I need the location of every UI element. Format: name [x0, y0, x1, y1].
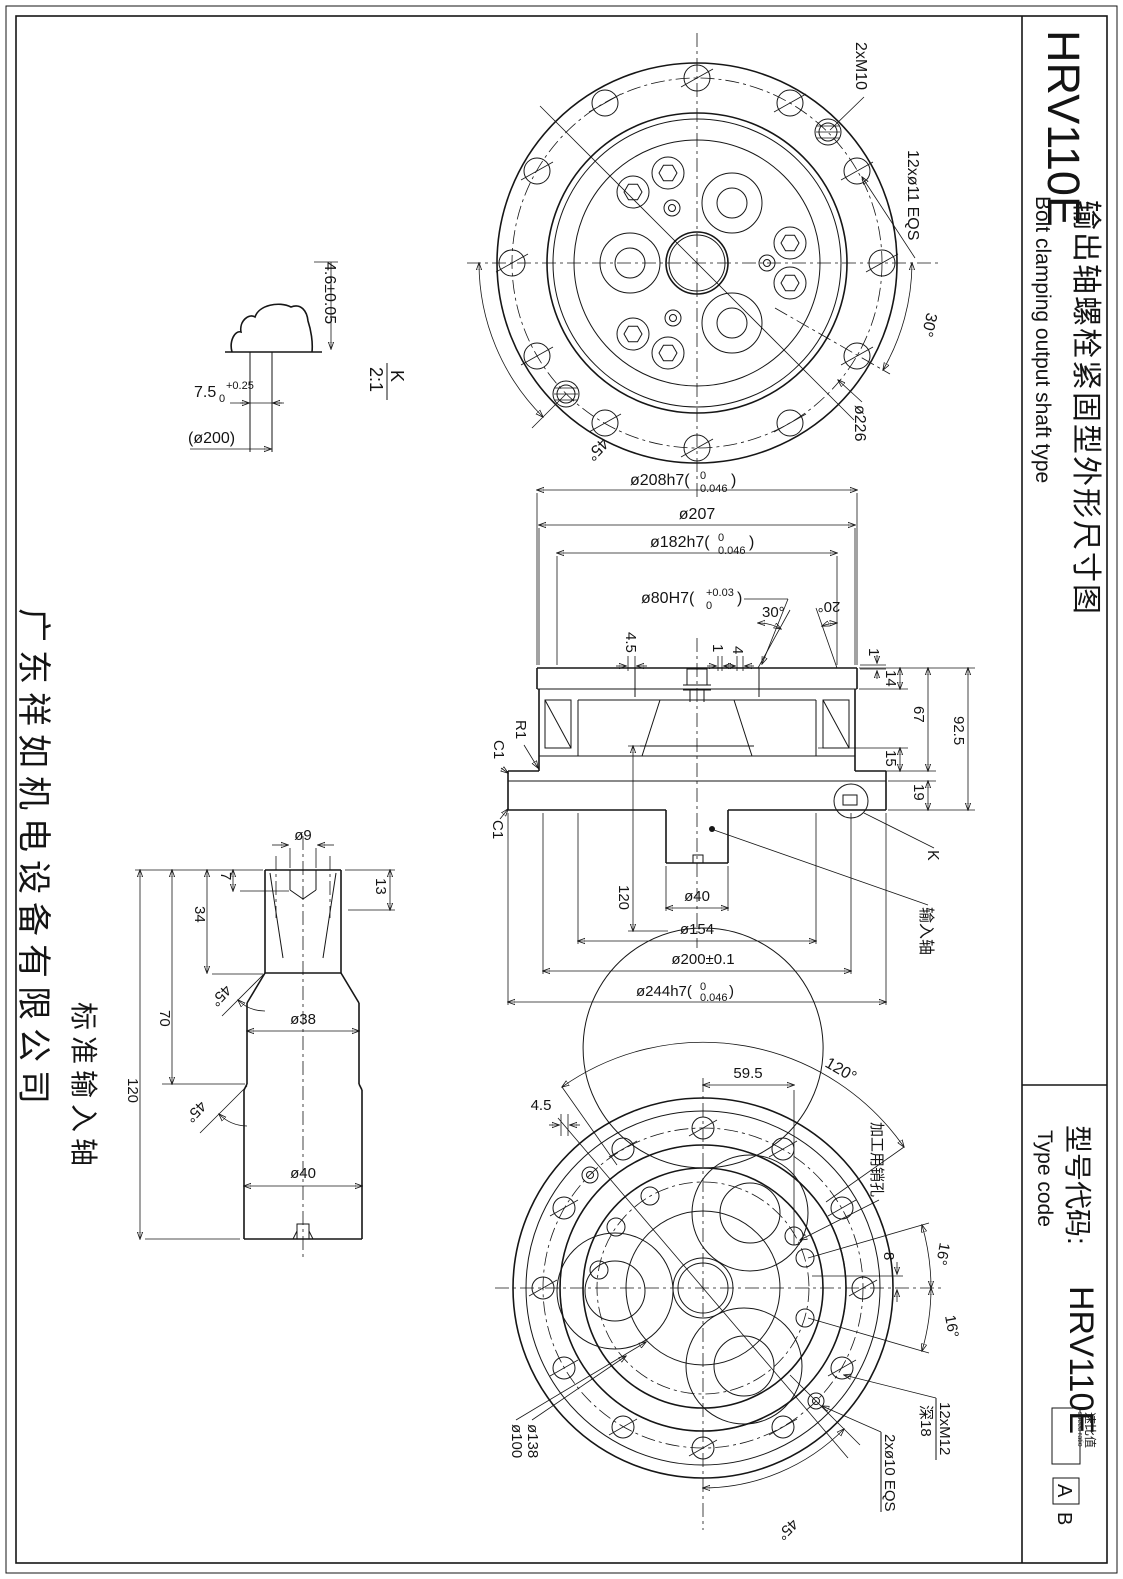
dim-dia40-shaft: ø40 — [290, 1165, 316, 1182]
rear-view: 59.5 4.5 120° 加工用销孔 8 16° 16° 12xM12 深18… — [495, 928, 962, 1543]
detail-k-slot-sub: 0 — [219, 393, 225, 405]
dim-92-5: 92.5 — [950, 716, 967, 745]
dim-120: 120 — [615, 885, 632, 910]
detail-k-ref-dia: (ø200) — [188, 430, 235, 447]
dim-dia80: ø80H7( — [641, 590, 695, 607]
dim-angle45-rear: 45° — [773, 1515, 801, 1543]
dim-dia182-up: 0 — [718, 532, 724, 544]
dim-dia38: ø38 — [290, 1011, 316, 1028]
dim-angle16-lower: 16° — [941, 1314, 962, 1339]
dim-dia208-up: 0 — [700, 470, 706, 482]
dim-dia182-close: ) — [749, 534, 754, 551]
front-bolt-circle-dia: ø226 — [851, 405, 868, 442]
detail-k-height: 4.6±0.05 — [321, 262, 338, 324]
dim-19: 19 — [910, 784, 927, 801]
tap-depth: 深18 — [917, 1405, 934, 1437]
dim-dia208-close: ) — [731, 472, 736, 489]
detail-k-label: K — [387, 370, 407, 382]
chamfer-c1-bottom: C1 — [489, 820, 506, 839]
pin-hole-note: 加工用销孔 — [868, 1122, 885, 1197]
dim-dia9: ø9 — [294, 827, 312, 844]
dim-1-left: 1 — [709, 644, 726, 652]
dim-angle30: 30° — [762, 604, 785, 621]
dim-34: 34 — [191, 906, 208, 923]
dim-70: 70 — [156, 1010, 173, 1027]
type-code-label-en: Type code — [1033, 1130, 1056, 1227]
dim-4-5-top: 4.5 — [622, 632, 639, 653]
title-cn: 输出轴螺栓紧固型外形尺寸图 — [1069, 200, 1102, 616]
dim-dia207: ø207 — [679, 506, 716, 523]
dim-angle20: 20° — [818, 598, 841, 615]
dim-dia80-close: ) — [737, 590, 742, 607]
suffix-a: A — [1053, 1484, 1075, 1498]
dim-dia244-low: 0.046 — [700, 992, 728, 1004]
front-bolt-note: 2xM10 — [852, 42, 869, 90]
chamfer-top-45: 45° — [207, 981, 235, 1009]
pin-note: 2xø10 EQS — [881, 1434, 898, 1512]
dim-8: 8 — [880, 1252, 897, 1260]
input-shaft-label: 标准输入轴 — [68, 1002, 99, 1172]
company-name: 广东祥如机电设备有限公司 — [14, 608, 52, 1112]
detail-k-slot-sup: +0.25 — [226, 380, 254, 392]
section-detail-ref: K — [924, 850, 941, 861]
dim-dia138: ø138 — [524, 1424, 541, 1458]
type-code-label-cn: 型号代码: — [1062, 1125, 1093, 1245]
chamfer-bottom-45: 45° — [182, 1097, 210, 1125]
title-en: Bolt clamping output shaft type — [1031, 196, 1054, 483]
speed-ratio-en: speed ratio — [1076, 1412, 1083, 1447]
dim-4-top: 4 — [729, 646, 746, 654]
dim-dia182: ø182h7( — [650, 534, 710, 551]
dim-dia100: ø100 — [508, 1424, 525, 1458]
section-view: ø208h7( 0 0.046 ) ø207 ø182h7( 0 0.046 )… — [489, 470, 975, 1005]
dim-14: 14 — [882, 670, 899, 687]
dim-angle120: 120° — [822, 1055, 859, 1086]
detail-k-view: 4.6±0.05 7.5 0 +0.25 (ø200) K 2:1 — [188, 262, 407, 452]
dim-dia40: ø40 — [684, 888, 710, 905]
front-view: 2xM10 12xø11 EQS 30° ø226 45° — [467, 33, 942, 497]
input-shaft-ref: 输入轴 — [917, 907, 935, 955]
speed-ratio-cn: 速比值 — [1083, 1412, 1098, 1448]
suffix-b: B — [1053, 1512, 1075, 1525]
dim-dia200: ø200±0.1 — [671, 951, 734, 968]
title-block: HRV110E 输出轴螺栓紧固型外形尺寸图 Bolt clamping outp… — [1031, 30, 1102, 616]
dim-dia208-low: 0.046 — [700, 483, 728, 495]
dim-angle16-upper: 16° — [932, 1241, 953, 1266]
dim-dia244-close: ) — [729, 983, 734, 1000]
dim-dia80-up: +0.03 — [706, 587, 734, 599]
front-angle-pitch: 30° — [918, 311, 940, 338]
dim-dia182-low: 0.046 — [718, 545, 746, 557]
dim-15: 15 — [882, 750, 899, 767]
detail-k-slot-base: 7.5 — [194, 384, 216, 401]
drawing-sheet: HRV110E 输出轴螺栓紧固型外形尺寸图 Bolt clamping outp… — [0, 0, 1123, 1579]
dim-4-5-rear: 4.5 — [531, 1097, 552, 1114]
dim-1-right: 1 — [865, 648, 882, 656]
dim-59-5: 59.5 — [733, 1065, 762, 1082]
tap-note: 12xM12 — [936, 1402, 953, 1455]
input-shaft-view: 标准输入轴 ø9 7 13 34 70 1 — [68, 827, 395, 1258]
type-code-block: 型号代码: Type code HRV110E 速比值 speed ratio … — [1033, 1125, 1100, 1525]
front-hole-note: 12xø11 EQS — [904, 150, 921, 240]
fillet-r1: R1 — [512, 720, 529, 739]
dim-13: 13 — [372, 878, 389, 895]
dim-dia244: ø244h7( — [636, 983, 692, 1000]
detail-k-scale: 2:1 — [366, 367, 386, 392]
cad-drawing: HRV110E 输出轴螺栓紧固型外形尺寸图 Bolt clamping outp… — [0, 0, 1123, 1579]
dim-120-shaft: 120 — [124, 1078, 141, 1103]
front-angle-m10: 45° — [583, 434, 612, 463]
chamfer-c1-top: C1 — [490, 740, 507, 759]
dim-dia208: ø208h7( — [630, 472, 690, 489]
dim-dia80-low: 0 — [706, 600, 712, 612]
dim-7: 7 — [217, 872, 234, 880]
dim-67: 67 — [910, 706, 927, 723]
